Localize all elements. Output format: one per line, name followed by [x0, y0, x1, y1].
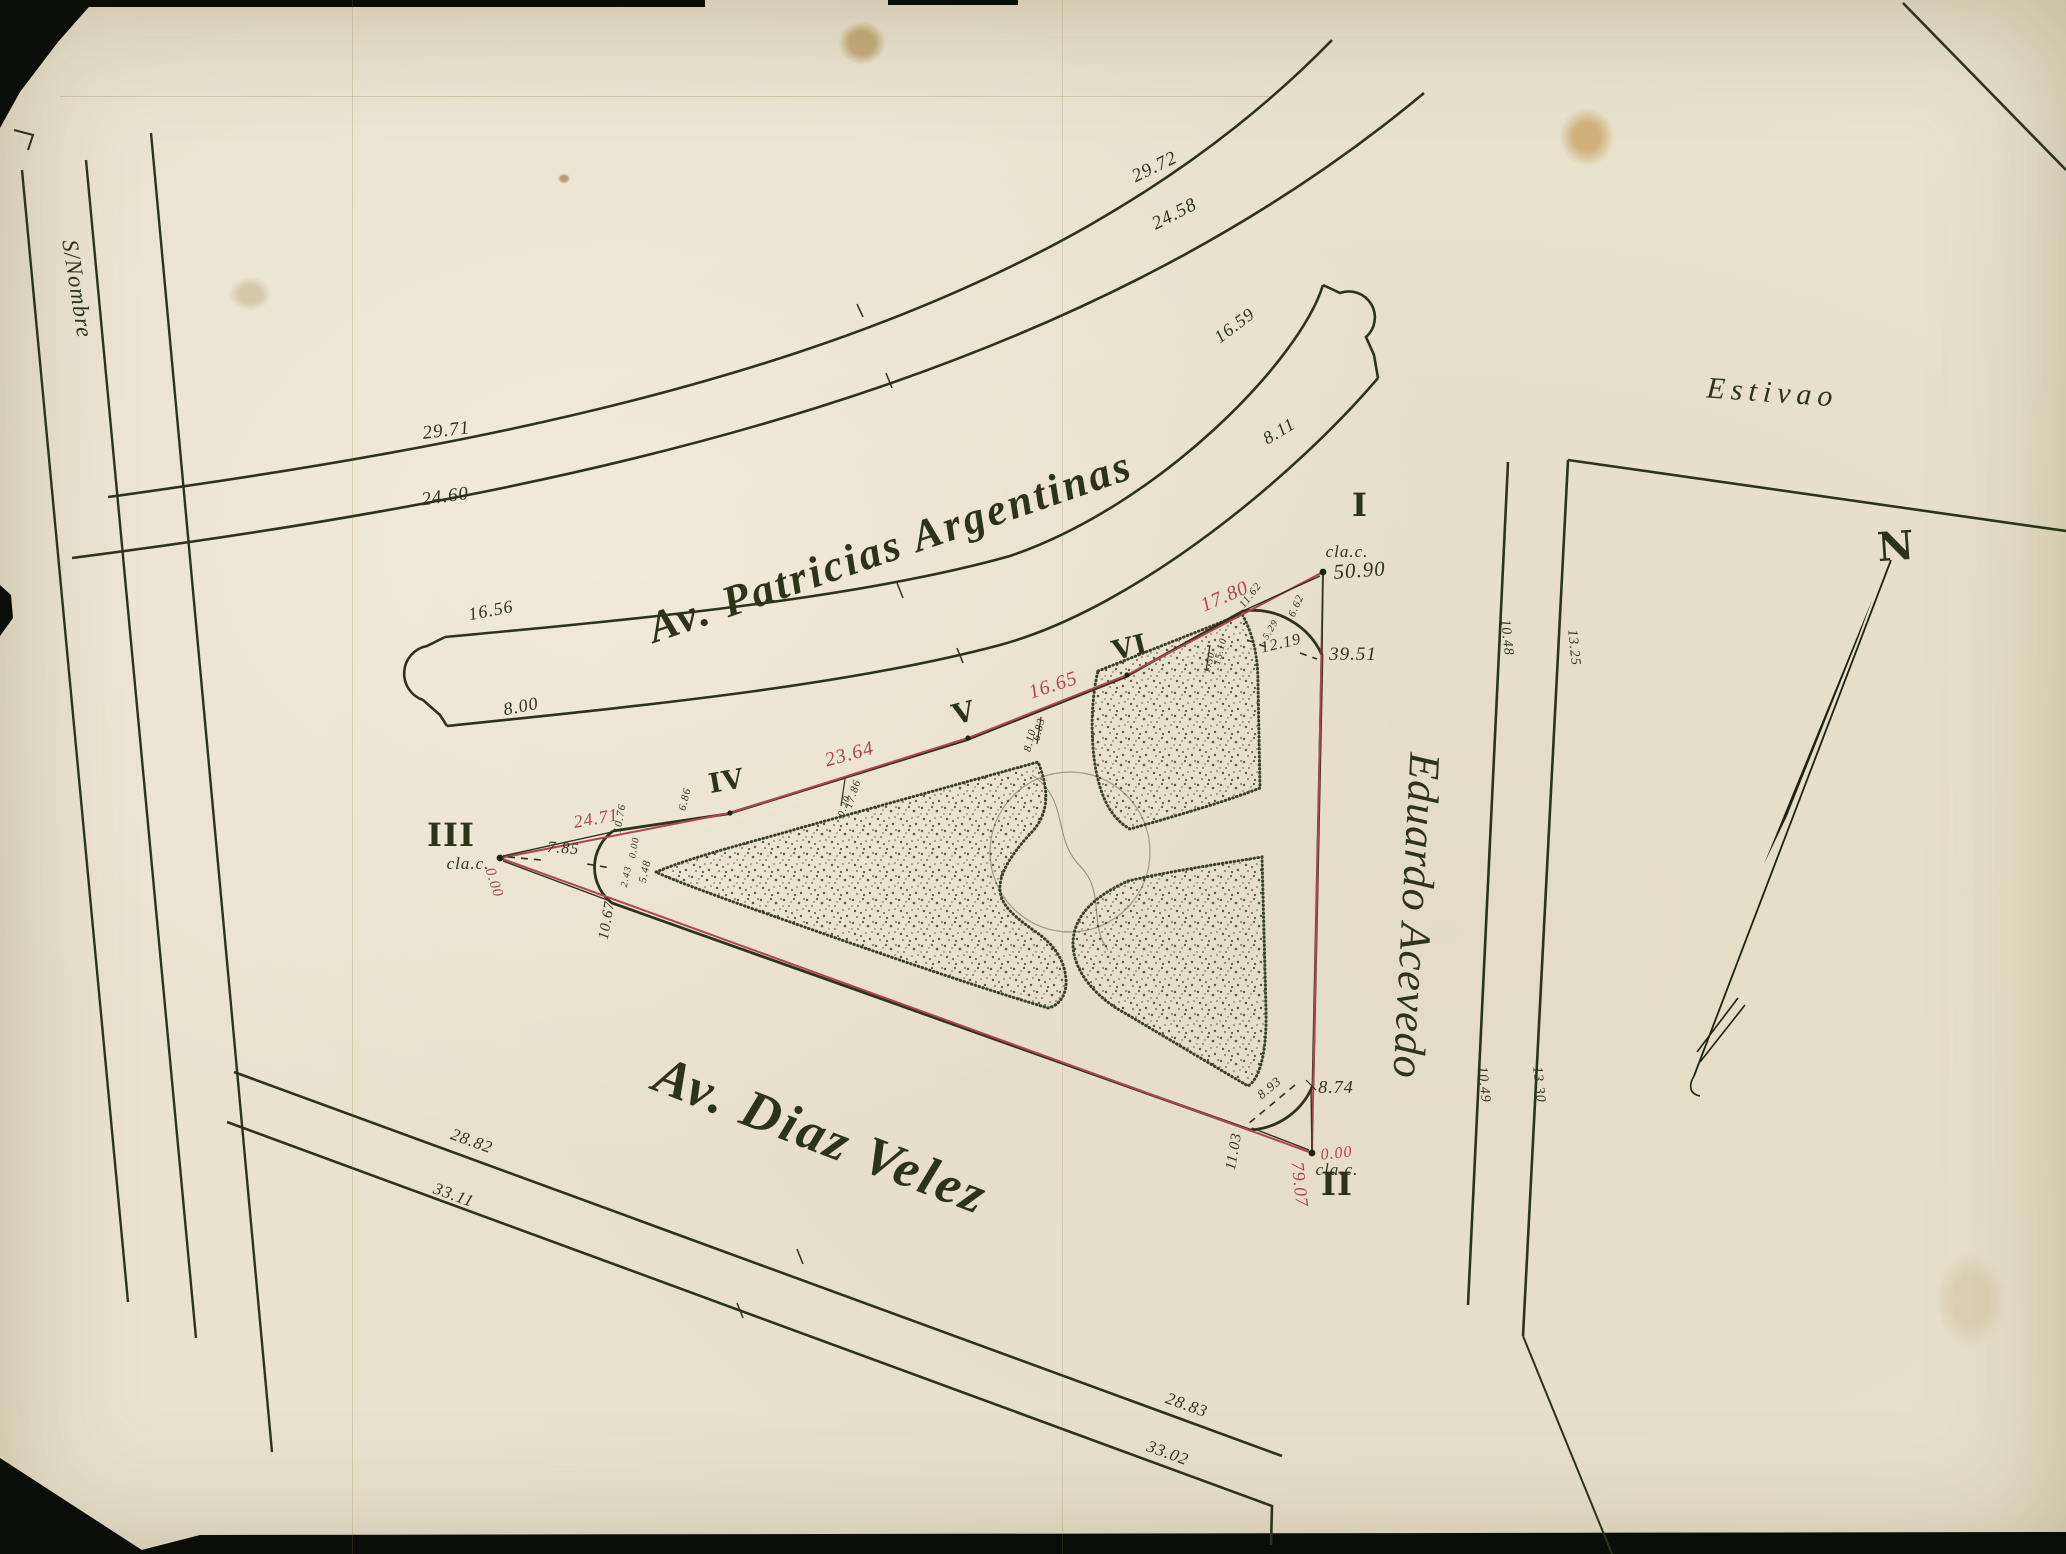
estivao-corner-diagonal [1903, 3, 2066, 170]
scan-edge-top-strip [0, 0, 705, 7]
level-p1: 50.90 [1333, 556, 1387, 584]
dot-p1 [1320, 569, 1327, 576]
off4-p3: 2.43 [619, 865, 634, 888]
level-red-p3: 0.00 [482, 866, 507, 900]
street-acevedo [1468, 460, 1612, 1554]
dot-p2 [1309, 1150, 1316, 1157]
dot-p5 [965, 735, 970, 740]
meas-patricias-2458: 24.58 [1148, 194, 1200, 234]
off2-p3: 0.00 [627, 836, 642, 859]
sin-nombre-corner-tick [14, 130, 33, 150]
patricias-tick-3 [897, 583, 903, 598]
numeral-p4: IV [706, 763, 746, 800]
compass-needle-blade [1764, 600, 1872, 864]
red-seg-p4: 23.64 [822, 737, 876, 771]
dot-p4 [727, 810, 732, 815]
label-diaz-velez: Av. Diaz Velez [643, 1043, 996, 1226]
meas-patricias-1656: 16.56 [467, 596, 515, 624]
aux-p2-tangent [1252, 1128, 1309, 1150]
patricias-walk-right-cap [1323, 285, 1378, 378]
traverse-east [1312, 572, 1323, 1153]
patricias-walk-top-curve [445, 285, 1323, 637]
off3-p3: 5.48 [637, 859, 654, 884]
meas-patricias-811: 8.11 [1259, 413, 1299, 448]
compass-feather-1 [1700, 1005, 1745, 1062]
off1-p4: 6.86 [676, 787, 693, 812]
patricias-tick-1 [857, 304, 863, 317]
meas-diaz-3302: 33.02 [1143, 1436, 1191, 1469]
meas-acevedo-1325: 13.25 [1564, 629, 1583, 667]
aux-p1-east-ext [1322, 575, 1323, 655]
scan-edge-top-strip2 [888, 0, 1018, 5]
red-side-p2: 79.07 [1288, 1161, 1313, 1208]
numeral-p1: I [1352, 486, 1368, 524]
compass-north-label: N [1876, 522, 1917, 572]
garden-bed-southeast [1073, 857, 1266, 1086]
aux-p2-east-ext [1311, 1087, 1312, 1150]
diaz-tick-1 [797, 1249, 803, 1264]
meas-patricias-2972: 29.72 [1129, 147, 1181, 187]
acevedo-curb-line [1468, 462, 1508, 1305]
off1-p2: 11.03 [1223, 1131, 1245, 1171]
sin-nombre-line-1 [22, 170, 128, 1302]
dash-p3-a [508, 857, 541, 860]
scanned-plan-paper: N S/Nombre Av. Patricias Argentinas Av. … [0, 0, 2066, 1554]
axis-p3: 7.85 [547, 839, 580, 858]
plan-drawing: N S/Nombre Av. Patricias Argentinas Av. … [0, 0, 2066, 1554]
acevedo-block-corner-line [1523, 1336, 1612, 1554]
diaz-south-line [227, 1122, 1272, 1545]
scan-edge-bottom-band [126, 1532, 2066, 1554]
dash-p1-b [1300, 653, 1317, 659]
compass-hook [1691, 1076, 1700, 1096]
garden-beds [656, 614, 1266, 1086]
meas-patricias-1659: 16.59 [1210, 304, 1258, 347]
compass: N [1691, 522, 1917, 1096]
numeral-p5: V [948, 694, 979, 732]
street-diaz-velez [227, 1072, 1282, 1545]
dot-p6 [1124, 672, 1129, 677]
plaza [497, 569, 1327, 1157]
dot-p3 [497, 855, 504, 862]
street-estivao [1568, 3, 2066, 531]
sin-nombre-line-3 [151, 133, 272, 1452]
tangent-p3: 10.67 [596, 899, 619, 940]
estivao-line [1568, 460, 2066, 531]
compass-needle-shaft [1694, 560, 1891, 1076]
patricias-walk-left-cap [404, 637, 447, 726]
scan-edge-top-left [0, 0, 95, 128]
label-estivao: Estivao [1705, 371, 1840, 413]
tangent-p1: 39.51 [1328, 644, 1377, 665]
acevedo-block-line [1523, 460, 1568, 1336]
meas-acevedo-1330: 13.30 [1529, 1066, 1548, 1104]
meas-patricias-2460: 24.60 [420, 483, 470, 510]
compass-feather-2 [1697, 998, 1738, 1052]
level-red-p2: 0.00 [1320, 1143, 1354, 1163]
tangent-p2: 8.74 [1318, 1077, 1354, 1097]
off2-p5: 8.10 [1021, 728, 1038, 753]
sin-nombre-line-2 [86, 160, 196, 1338]
label-sin-nombre: S/Nombre [57, 238, 97, 340]
numeral-p3: III [427, 816, 475, 854]
dash-p3-b [587, 864, 611, 868]
off2-p1: 6.62 [1286, 593, 1306, 619]
label-acevedo: Eduardo Acevedo [1383, 750, 1449, 1080]
street-labels: S/Nombre Av. Patricias Argentinas Av. Di… [57, 238, 1839, 1226]
scan-edge-bottom-left [0, 1458, 148, 1554]
street-sin-nombre [14, 130, 272, 1452]
meas-patricias-800: 8.00 [502, 693, 541, 719]
scan-edge-left-nick [0, 585, 13, 636]
patricias-outer-curve-1 [108, 40, 1332, 497]
